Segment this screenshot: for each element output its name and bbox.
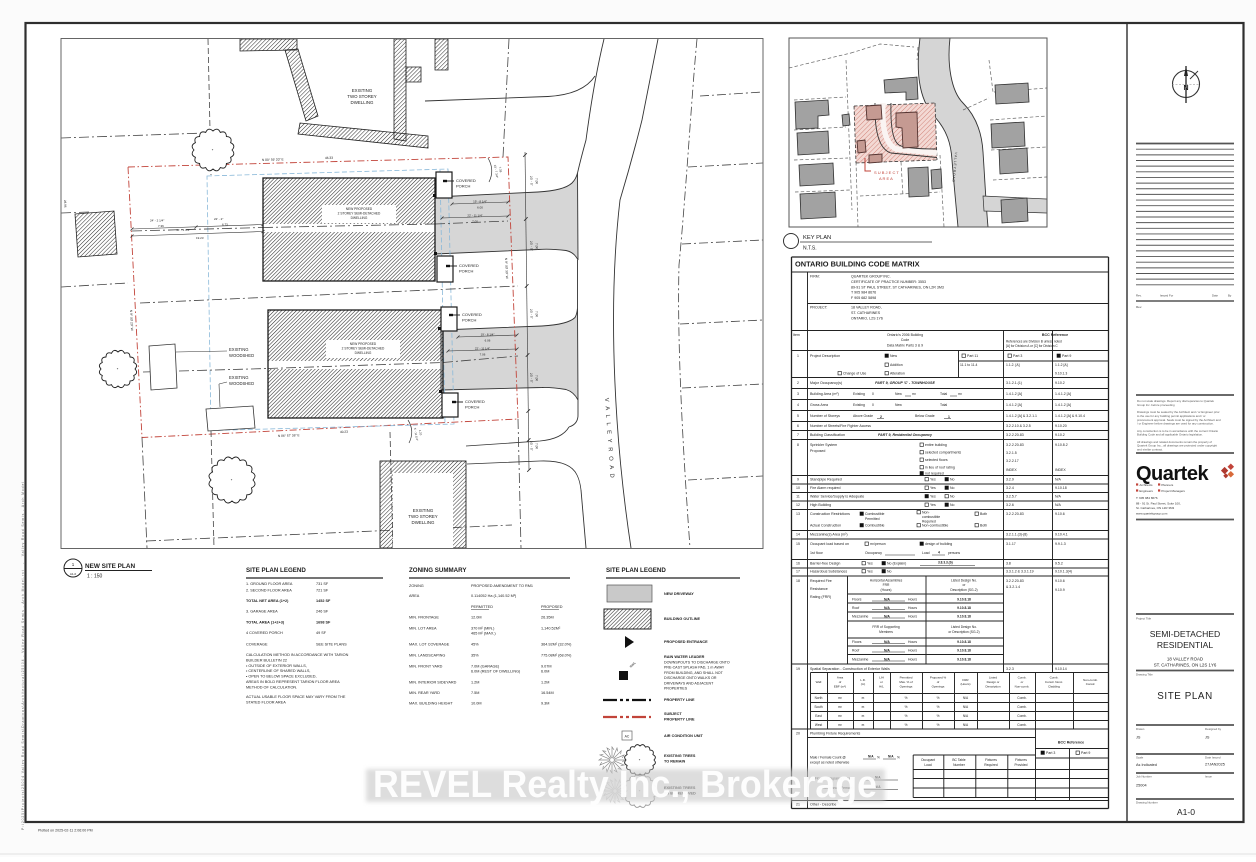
svg-text:BCC Reference: BCC Reference	[1058, 741, 1084, 745]
svg-text:m²: m²	[838, 723, 842, 727]
svg-text:4: 4	[797, 403, 799, 407]
svg-text:465 M² (MAX.): 465 M² (MAX.)	[471, 632, 496, 636]
svg-text:CERTIFICATE OF PRACTICE NUMBER: CERTIFICATE OF PRACTICE NUMBER: 3553	[851, 280, 926, 284]
svg-text:Yes: Yes	[867, 570, 873, 574]
svg-text:6.0M (REST OF DWELLING): 6.0M (REST OF DWELLING)	[471, 670, 521, 674]
svg-text:7.0M (GARAGE): 7.0M (GARAGE)	[471, 665, 500, 669]
svg-text:BCC Reference: BCC Reference	[1042, 333, 1068, 337]
svg-text:COVERED: COVERED	[462, 312, 482, 317]
svg-text:Roof: Roof	[852, 649, 859, 653]
svg-text:3: 3	[797, 392, 799, 396]
svg-text:NEW DRIVEWAY: NEW DRIVEWAY	[664, 592, 694, 596]
svg-text:9.10.6: 9.10.6	[1055, 512, 1065, 516]
svg-text:2. SECOND FLOOR AREA: 2. SECOND FLOOR AREA	[246, 589, 292, 593]
svg-text:364.92M² (32.0%): 364.92M² (32.0%)	[541, 643, 572, 647]
svg-text:Part 3: Part 3	[1013, 354, 1022, 358]
svg-text:RAIN WATER LEADER: RAIN WATER LEADER	[664, 655, 705, 659]
svg-text:Water Service/Supply is Adequa: Water Service/Supply is Adequate	[810, 495, 864, 499]
svg-text:Roof: Roof	[852, 606, 859, 610]
svg-text:246 SF: 246 SF	[316, 610, 329, 614]
svg-text:COVERED: COVERED	[456, 178, 476, 183]
svg-text:Yes: Yes	[930, 503, 936, 507]
svg-text:No: No	[950, 495, 955, 499]
svg-text:ZONING SUMMARY: ZONING SUMMARY	[409, 567, 467, 574]
svg-text:SITE PLAN LEGEND: SITE PLAN LEGEND	[606, 567, 666, 574]
svg-text:Proposed %: Proposed %	[930, 676, 947, 680]
svg-text:Rating (FRR): Rating (FRR)	[810, 595, 831, 599]
svg-text:Project Description: Project Description	[810, 354, 840, 358]
svg-text:PORCH: PORCH	[459, 269, 474, 274]
svg-text:7.06: 7.06	[535, 443, 539, 450]
svg-text:1.4.1.2 [A] & 9.10.4: 1.4.1.2 [A] & 9.10.4	[1055, 414, 1085, 418]
svg-text:35%: 35%	[471, 654, 479, 658]
svg-text:0.114052 Ha (1,140.52 M²): 0.114052 Ha (1,140.52 M²)	[471, 594, 517, 598]
svg-text:F 905 682 5898: F 905 682 5898	[851, 296, 876, 300]
svg-text:1,140.52M²: 1,140.52M²	[541, 627, 561, 631]
svg-text:Data Matrix Parts 3 & 9: Data Matrix Parts 3 & 9	[887, 344, 923, 348]
svg-text:20: 20	[796, 732, 800, 736]
svg-text:T 905 984 8676: T 905 984 8676	[851, 291, 876, 295]
svg-text:TWO STOREY: TWO STOREY	[408, 514, 438, 519]
svg-text:3.8.3.3.(b): 3.8.3.3.(b)	[938, 561, 953, 565]
svg-text:Wall: Wall	[816, 680, 822, 684]
svg-text:9.10.8.2: 9.10.8.2	[1055, 443, 1068, 447]
svg-text:9.9.1.3: 9.9.1.3	[1055, 542, 1066, 546]
svg-text:BUILDING OUTLINE: BUILDING OUTLINE	[664, 617, 701, 621]
svg-text:7.00: 7.00	[472, 220, 478, 224]
svg-text:or: or	[880, 680, 883, 684]
svg-text:1 : 150: 1 : 150	[87, 574, 103, 580]
svg-text:Plotted on 2025-02-11 2:06:00: Plotted on 2025-02-11 2:06:00 PM	[38, 829, 93, 833]
svg-text:9.10.4.1: 9.10.4.1	[1055, 533, 1068, 537]
svg-text:9.5.2: 9.5.2	[1055, 562, 1063, 566]
svg-text:A1-0: A1-0	[70, 572, 77, 576]
svg-text:23' - 5": 23' - 5"	[529, 441, 534, 451]
svg-text:3.2.2.20-83: 3.2.2.20-83	[1006, 579, 1024, 583]
svg-text:Comb.: Comb.	[1017, 705, 1027, 709]
svg-text:Members: Members	[879, 630, 893, 634]
svg-text:22' - 11 1/4": 22' - 11 1/4"	[467, 214, 482, 218]
svg-text:3.2.1.1.(3)-(8): 3.2.1.1.(3)-(8)	[1006, 533, 1027, 537]
svg-text:Barrier-free Design: Barrier-free Design	[810, 562, 840, 566]
svg-text:40.23: 40.23	[340, 430, 348, 434]
svg-text:6.00: 6.00	[477, 206, 483, 210]
svg-text:PERMITTED: PERMITTED	[471, 605, 493, 609]
svg-text:Non-combustible: Non-combustible	[922, 524, 948, 528]
svg-text:FRR: FRR	[883, 583, 890, 587]
svg-text:MAX. BUILDING HEIGHT: MAX. BUILDING HEIGHT	[409, 702, 453, 706]
svg-text:1.2M: 1.2M	[471, 681, 479, 685]
svg-text:Description (SG-2): Description (SG-2)	[950, 588, 977, 592]
svg-text:3.2.9: 3.2.9	[1006, 478, 1014, 482]
svg-text:PROPOSED AMENDMENT TO RM1: PROPOSED AMENDMENT TO RM1	[471, 584, 533, 588]
svg-text:%: %	[937, 723, 940, 727]
svg-text:9.10.8.18: 9.10.8.18	[957, 649, 971, 653]
svg-text:Gross Area: Gross Area	[810, 403, 828, 407]
svg-text:PROPERTY LINE: PROPERTY LINE	[664, 698, 695, 702]
svg-text:Hours: Hours	[908, 640, 917, 644]
svg-text:Quartek: Quartek	[1136, 463, 1209, 485]
svg-text:3.2.3: 3.2.3	[1006, 667, 1014, 671]
svg-text:EXISTING: EXISTING	[229, 347, 249, 352]
svg-text:JS: JS	[1205, 736, 1210, 740]
svg-text:• OUTSIDE OF EXTERIOR WALL: • OUTSIDE OF EXTERIOR WALLS,	[246, 664, 307, 668]
svg-text:Required Fire: Required Fire	[810, 579, 832, 583]
svg-text:• CENTERLINE OF SHARED WAL: • CENTERLINE OF SHARED WALLS,	[246, 669, 310, 673]
svg-text:88 - 91 St. Paul Street, Suite: 88 - 91 St. Paul Street, Suite 100,	[1136, 502, 1181, 506]
svg-text:entire building: entire building	[925, 443, 947, 447]
svg-text:PART 9, Residential Occupancy: PART 9, Residential Occupancy	[878, 433, 933, 437]
svg-text:Part 9: Part 9	[1081, 751, 1090, 755]
svg-text:Comb.: Comb.	[1017, 714, 1027, 718]
svg-text:%: %	[905, 714, 908, 718]
svg-text:9.10.8.18: 9.10.8.18	[957, 658, 971, 662]
svg-text:not required: not required	[925, 472, 944, 476]
svg-text:9.10.8.18: 9.10.8.18	[957, 615, 971, 619]
svg-text:S U B J E C T: S U B J E C T	[874, 170, 899, 175]
svg-text:Horizontal Assemblies: Horizontal Assemblies	[870, 579, 903, 583]
svg-text:Listed Design No.: Listed Design No.	[951, 579, 977, 583]
svg-text:9.10.2: 9.10.2	[1055, 433, 1065, 437]
svg-text:9.10.9: 9.10.9	[1055, 588, 1065, 592]
svg-text:selected floors: selected floors	[925, 458, 948, 462]
svg-text:9.3M: 9.3M	[541, 702, 549, 706]
svg-text:m: m	[862, 696, 865, 700]
svg-text:and similar contract.: and similar contract.	[1137, 448, 1163, 452]
svg-text:Openings: Openings	[932, 684, 945, 688]
svg-text:SUBJECT: SUBJECT	[664, 712, 682, 716]
svg-text:9.10.8.18: 9.10.8.18	[957, 640, 971, 644]
svg-text:%: %	[937, 705, 940, 709]
svg-text:Floors: Floors	[852, 598, 862, 602]
svg-text:TO REMAIN: TO REMAIN	[664, 760, 685, 764]
svg-text:INDEX: INDEX	[1055, 468, 1066, 472]
svg-text:Project Managers: Project Managers	[1161, 489, 1185, 493]
svg-text:14: 14	[796, 533, 800, 537]
svg-text:DWELLING: DWELLING	[412, 520, 436, 525]
svg-text:PROJECT:: PROJECT:	[810, 306, 828, 310]
svg-text:N/A: N/A	[1055, 503, 1062, 507]
svg-text:Code: Code	[901, 338, 909, 342]
svg-text:Fixtures: Fixtures	[1015, 758, 1027, 762]
svg-text:Comb.: Comb.	[1050, 676, 1059, 680]
svg-text:Fire Alarm required: Fire Alarm required	[810, 486, 841, 490]
svg-text:1698 SF: 1698 SF	[316, 621, 331, 625]
svg-text:Drawing Number: Drawing Number	[1136, 801, 1158, 805]
svg-text:2: 2	[880, 415, 882, 419]
svg-text:12: 12	[796, 503, 800, 507]
svg-text:45%: 45%	[471, 643, 479, 647]
svg-text:9.10.8.18: 9.10.8.18	[957, 606, 971, 610]
svg-text:REVEL Realty Inc., Brokerage: REVEL Realty Inc., Brokerage	[373, 764, 877, 806]
svg-text:N/A: N/A	[963, 714, 969, 718]
svg-text:FIRM:: FIRM:	[810, 275, 820, 279]
svg-text:WOODSHED: WOODSHED	[229, 353, 254, 358]
svg-text:1.4.1.2 [A] & 3.2.1.1: 1.4.1.2 [A] & 3.2.1.1	[1006, 414, 1037, 418]
svg-text:Constr. Nonc.: Constr. Nonc.	[1045, 680, 1063, 684]
svg-text:Both: Both	[980, 512, 987, 516]
svg-text:3.2.4: 3.2.4	[1006, 486, 1014, 490]
svg-text:Part 11: Part 11	[967, 354, 978, 358]
svg-text:Actual Construction: Actual Construction	[810, 524, 841, 528]
svg-text:PROPERTIES: PROPERTIES	[664, 687, 688, 691]
svg-text:Number: Number	[953, 763, 966, 767]
svg-text:Proposed: Proposed	[810, 449, 825, 453]
svg-text:MIN. FRONT YARD: MIN. FRONT YARD	[409, 665, 443, 669]
svg-text:1.1.2 [A]: 1.1.2 [A]	[1055, 363, 1068, 367]
svg-text:10.0M: 10.0M	[471, 702, 482, 706]
svg-text:KEY PLAN: KEY PLAN	[803, 235, 831, 241]
svg-text:L.D.: L.D.	[860, 678, 866, 682]
svg-text:m²: m²	[838, 705, 842, 709]
svg-text:Mezzanine(s) Area (m²): Mezzanine(s) Area (m²)	[810, 533, 848, 537]
svg-text:4: 4	[938, 551, 940, 555]
svg-text:1. GROUND FLOOR AREA: 1. GROUND FLOOR AREA	[246, 582, 293, 586]
svg-text:23' - 5": 23' - 5"	[529, 241, 534, 251]
svg-text:PROPOSED: PROPOSED	[541, 605, 563, 609]
svg-text:PORCH: PORCH	[462, 318, 477, 323]
svg-text:Spatial Separation - Construct: Spatial Separation - Construction of Ext…	[810, 667, 890, 671]
svg-text:731 SF: 731 SF	[316, 582, 329, 586]
svg-text:N: N	[1183, 85, 1188, 92]
svg-text:%: %	[877, 756, 880, 760]
svg-text:TOTAL AREA (1+2+3): TOTAL AREA (1+2+3)	[246, 621, 285, 625]
svg-text:18: 18	[796, 579, 800, 583]
svg-text:11.1 to 11.4: 11.1 to 11.4	[960, 363, 978, 367]
svg-text:721 SF: 721 SF	[316, 589, 329, 593]
svg-text:7: 7	[797, 433, 799, 437]
svg-text:Both: Both	[980, 524, 987, 528]
svg-text:9.10.1.3(4): 9.10.1.3(4)	[1055, 570, 1072, 574]
svg-text:18 VALLEY ROAD: 18 VALLEY ROAD	[1167, 657, 1203, 662]
svg-text:23' - 5": 23' - 5"	[529, 176, 534, 186]
svg-text:Group Inc. before proceeding: Group Inc. before proceeding	[1137, 403, 1175, 407]
svg-text:3.2.2.20-83: 3.2.2.20-83	[1006, 443, 1024, 447]
svg-text:23' - 5": 23' - 5"	[529, 309, 534, 319]
svg-text:7.5M: 7.5M	[471, 691, 479, 695]
svg-text:m: m	[862, 705, 865, 709]
svg-text:(Hours): (Hours)	[960, 682, 970, 686]
svg-text:m²: m²	[838, 714, 842, 718]
svg-text:16.54M: 16.54M	[541, 691, 554, 695]
svg-text:ST. CATHARINES: ST. CATHARINES	[851, 311, 881, 315]
svg-text:Comb.: Comb.	[1017, 723, 1027, 727]
svg-text:775.08M² (68.0%): 775.08M² (68.0%)	[541, 654, 572, 658]
svg-text:1.4.1.2 [A]: 1.4.1.2 [A]	[1055, 392, 1071, 396]
svg-text:ONTARIO, L2S 1Y6: ONTARIO, L2S 1Y6	[851, 316, 883, 320]
svg-text:N/A: N/A	[963, 696, 969, 700]
svg-text:2 STOREY SEMI-DETACHED: 2 STOREY SEMI-DETACHED	[338, 212, 381, 216]
svg-text:Addition: Addition	[890, 363, 903, 367]
svg-text:Yes: Yes	[930, 486, 936, 490]
svg-text:3.2.5.7: 3.2.5.7	[1006, 495, 1017, 499]
svg-text:COVERED: COVERED	[459, 263, 479, 268]
svg-text:46' - 4 1/4": 46' - 4 1/4"	[176, 228, 190, 232]
svg-text:3.2.1.5: 3.2.1.5	[1006, 451, 1017, 455]
svg-text:PRE-CAST SPLASH PAD, 1 m AWAY: PRE-CAST SPLASH PAD, 1 m AWAY	[664, 666, 725, 670]
svg-text:19.23: 19.23	[196, 236, 204, 240]
svg-text:BUILDER BULLETIN 22: BUILDER BULLETIN 22	[246, 658, 287, 662]
svg-text:1st floor: 1st floor	[810, 551, 824, 555]
svg-text:FRR of Supporting: FRR of Supporting	[872, 625, 899, 629]
svg-text:Hours: Hours	[908, 598, 917, 602]
svg-text:Ontario's 2006 Building: Ontario's 2006 Building	[887, 333, 923, 337]
svg-text:m: m	[862, 723, 865, 727]
svg-text:CALCULATION METHOD IN ACCORDAN: CALCULATION METHOD IN ACCORDANCE WITH TA…	[246, 653, 349, 657]
svg-text:7.06: 7.06	[535, 311, 539, 318]
svg-text:Hours: Hours	[908, 658, 917, 662]
svg-text:Openings: Openings	[900, 684, 913, 688]
svg-text:New: New	[890, 354, 897, 358]
svg-text:Listed: Listed	[989, 676, 997, 680]
svg-text:MIN. FRONTAGE: MIN. FRONTAGE	[409, 616, 439, 620]
svg-text:19' - 8 1/4": 19' - 8 1/4"	[481, 333, 495, 337]
svg-text:AC: AC	[625, 735, 630, 739]
svg-text:North: North	[815, 696, 823, 700]
svg-text:Existing: Existing	[853, 392, 865, 396]
svg-text:NEW PROPOSED: NEW PROPOSED	[350, 342, 377, 346]
svg-text:1.2M: 1.2M	[541, 681, 549, 685]
svg-text:3.2.2.10 & 3.2.5: 3.2.2.10 & 3.2.5	[1006, 424, 1031, 428]
svg-text:COVERAGE: COVERAGE	[246, 643, 268, 647]
svg-text:9.10.20: 9.10.20	[1055, 424, 1067, 428]
svg-text:T: 905 984 8676: T: 905 984 8676	[1136, 496, 1158, 500]
svg-text:24' - 2 1/4": 24' - 2 1/4"	[150, 219, 164, 223]
svg-text:METHOD OF CALCULATION.: METHOD OF CALCULATION.	[246, 685, 297, 689]
svg-text:ONTARIO BUILDING CODE MATRIX: ONTARIO BUILDING CODE MATRIX	[795, 260, 920, 269]
svg-text:& 3.2.1.4: & 3.2.1.4	[1006, 585, 1020, 589]
svg-text:Hazardous Substances: Hazardous Substances	[810, 570, 847, 574]
svg-text:• OPEN TO BELOW SPACE EXCL: • OPEN TO BELOW SPACE EXCLUDED,	[246, 675, 317, 679]
svg-text:High Building: High Building	[810, 503, 831, 507]
svg-text:4 COVERED PORCH: 4 COVERED PORCH	[246, 631, 283, 635]
svg-text:EBF (m²): EBF (m²)	[834, 684, 846, 688]
svg-text:3.2.2.17: 3.2.2.17	[1006, 459, 1019, 463]
svg-text:Change of Use: Change of Use	[843, 372, 866, 376]
svg-text:MIN. REAR YARD: MIN. REAR YARD	[409, 691, 440, 695]
svg-text:%: %	[905, 723, 908, 727]
svg-text:9.07M: 9.07M	[541, 665, 552, 669]
svg-text:EXISTING: EXISTING	[413, 508, 434, 513]
svg-text:PORCH: PORCH	[456, 184, 471, 189]
svg-text:6.0M: 6.0M	[541, 670, 549, 674]
svg-text:Yes: Yes	[930, 495, 936, 499]
svg-text:Cladding: Cladding	[1048, 684, 1060, 688]
svg-text:Occupancy: Occupancy	[865, 551, 882, 555]
svg-text:TOTAL NET AREA (1+2): TOTAL NET AREA (1+2)	[246, 599, 289, 603]
svg-text:9.10.8.18: 9.10.8.18	[957, 598, 971, 602]
svg-text:SITE PLAN LEGEND: SITE PLAN LEGEND	[246, 567, 306, 574]
svg-text:12.0M: 12.0M	[471, 616, 482, 620]
svg-text:7.06: 7.06	[535, 375, 539, 382]
svg-text:Load: Load	[924, 763, 932, 767]
svg-text:DOWNSPOUTS TO DISCHARGE ONTO: DOWNSPOUTS TO DISCHARGE ONTO	[664, 661, 730, 665]
svg-text:Issued For: Issued For	[1160, 294, 1173, 298]
svg-text:Permitted: Permitted	[865, 517, 880, 521]
svg-text:P:\2025\Projects\25004 Valley: P:\2025\Projects\25004 Valley Road Semis…	[21, 482, 25, 830]
svg-text:m²: m²	[838, 696, 842, 700]
svg-text:5: 5	[797, 414, 799, 418]
svg-text:2 STOREY SEMI-DETACHED: 2 STOREY SEMI-DETACHED	[342, 347, 385, 351]
svg-text:1452 SF: 1452 SF	[316, 599, 331, 603]
svg-text:Part 9: Part 9	[1062, 354, 1071, 358]
svg-text:Floors: Floors	[852, 640, 862, 644]
svg-text:9.10.6: 9.10.6	[1055, 579, 1065, 583]
svg-text:Total: Total	[940, 392, 947, 396]
svg-text:0: 0	[872, 403, 874, 407]
svg-text:SEMI-DETACHED: SEMI-DETACHED	[1150, 629, 1221, 639]
svg-text:DWELLING: DWELLING	[355, 351, 372, 355]
svg-text:Designed by: Designed by	[1205, 727, 1222, 731]
svg-text:370 M² (MIN.): 370 M² (MIN.)	[471, 627, 495, 631]
svg-text:L/H: L/H	[879, 676, 884, 680]
svg-text:NEW PROPOSED: NEW PROPOSED	[346, 207, 373, 211]
svg-text:Design or: Design or	[987, 680, 1000, 684]
svg-text:Male / Female Count @: Male / Female Count @	[810, 756, 846, 760]
svg-text:BC Table: BC Table	[952, 758, 965, 762]
svg-text:N/A: N/A	[868, 755, 874, 759]
svg-text:Comb.: Comb.	[1017, 696, 1027, 700]
svg-text:[A] for Division A or [C] for: [A] for Division A or [C] for Division C	[1006, 344, 1058, 348]
svg-text:Standpipe Required: Standpipe Required	[810, 478, 842, 482]
svg-text:MIN. LANDSCAPING: MIN. LANDSCAPING	[409, 654, 445, 658]
svg-text:16: 16	[796, 562, 800, 566]
svg-text:COVERED: COVERED	[465, 399, 485, 404]
svg-text:23' - 5": 23' - 5"	[529, 373, 534, 383]
svg-text:Yes: Yes	[930, 478, 936, 482]
svg-text:Building Code and all applicab: Building Code and all applicable Ontario…	[1137, 433, 1203, 437]
svg-text:Provided: Provided	[1014, 763, 1027, 767]
svg-text:JS: JS	[1136, 736, 1141, 740]
svg-text:m²/person: m²/person	[870, 542, 886, 546]
svg-text:PART 9, GROUP 'C' - TOWNHOUSE: PART 9, GROUP 'C' - TOWNHOUSE	[875, 381, 935, 385]
svg-text:or: or	[1021, 680, 1024, 684]
svg-text:Permitted: Permitted	[900, 676, 913, 680]
svg-text:South: South	[814, 705, 823, 709]
svg-text:Fixtures: Fixtures	[985, 758, 997, 762]
svg-text:in lieu of roof rating: in lieu of roof rating	[925, 466, 955, 470]
svg-text:www.quartekgroup.com: www.quartekgroup.com	[1136, 512, 1168, 516]
svg-text:N/A: N/A	[1055, 478, 1062, 482]
svg-text:A1-0: A1-0	[1177, 807, 1195, 817]
svg-text:No: No	[950, 478, 955, 482]
svg-text:combustible: combustible	[922, 515, 940, 519]
svg-text:%: %	[897, 756, 900, 760]
svg-text:EXISTING TREES: EXISTING TREES	[664, 754, 696, 758]
svg-text:EXISTING: EXISTING	[229, 375, 249, 380]
svg-text:Rev.: Rev.	[1136, 294, 1142, 298]
svg-text:m: m	[862, 714, 865, 718]
svg-text:STATED FLOOR AREA: STATED FLOOR AREA	[246, 700, 286, 704]
svg-text:Below Grade: Below Grade	[915, 414, 935, 418]
svg-text:New: New	[895, 403, 902, 407]
svg-text:No: No	[950, 503, 955, 507]
svg-text:3.2.6: 3.2.6	[1006, 503, 1014, 507]
svg-text:design of building: design of building	[925, 542, 952, 546]
svg-text:1.4.1.2 [A]: 1.4.1.2 [A]	[1006, 392, 1022, 396]
svg-text:FRR: FRR	[962, 678, 969, 682]
svg-text:N/A: N/A	[963, 723, 969, 727]
svg-text:Hours: Hours	[908, 649, 917, 653]
svg-text:%: %	[937, 696, 940, 700]
svg-text:Number of Storeys: Number of Storeys	[810, 414, 840, 418]
svg-text:(m): (m)	[861, 682, 866, 686]
svg-text:As Indicated: As Indicated	[1136, 763, 1157, 767]
svg-text:St. Catharines, ON L2R 3M3: St. Catharines, ON L2R 3M3	[1136, 506, 1175, 510]
svg-text:Building Area (m²): Building Area (m²)	[810, 392, 839, 396]
svg-text:3.2.2.20-83: 3.2.2.20-83	[1006, 512, 1024, 516]
svg-text:3.1.2.1.(1): 3.1.2.1.(1)	[1006, 381, 1022, 385]
